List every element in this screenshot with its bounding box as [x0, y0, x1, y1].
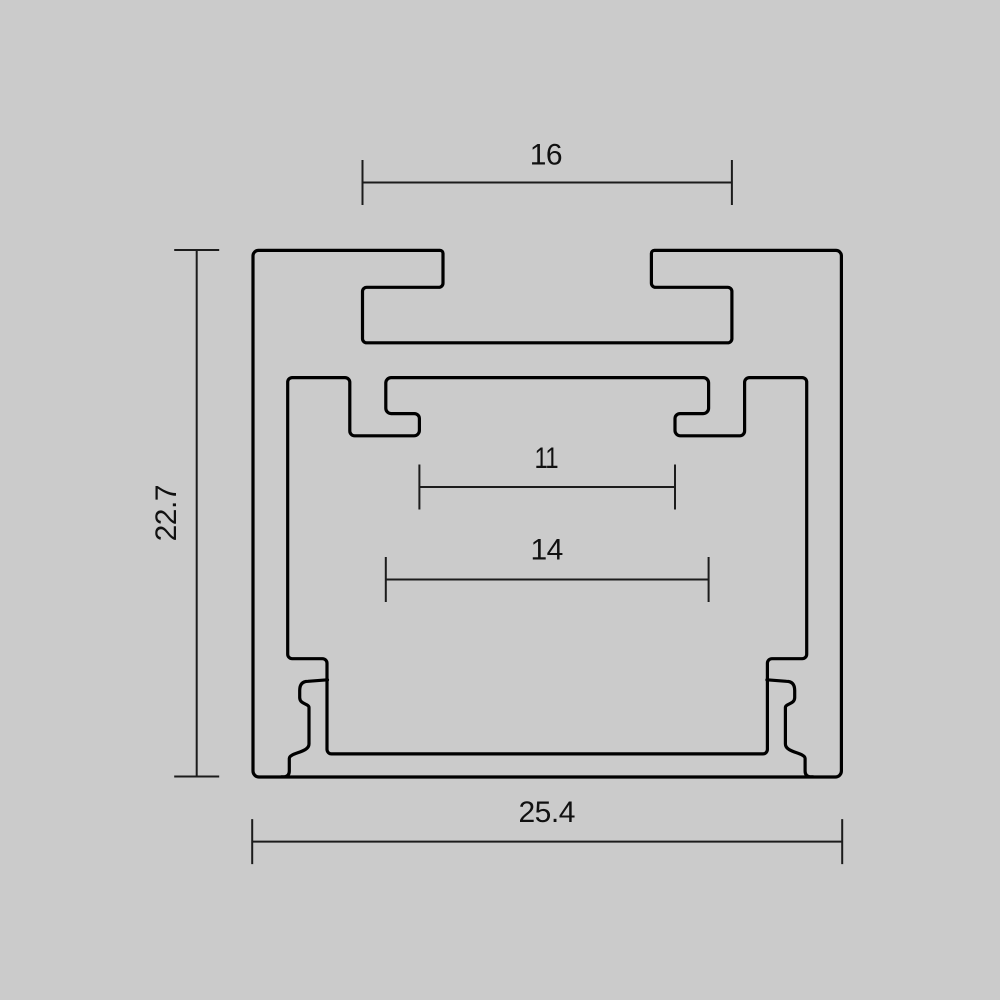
svg-text:11: 11 — [535, 440, 558, 474]
svg-text:22.7: 22.7 — [150, 485, 183, 541]
svg-text:14: 14 — [531, 533, 563, 566]
svg-text:25.4: 25.4 — [519, 796, 575, 829]
svg-text:16: 16 — [530, 138, 562, 171]
